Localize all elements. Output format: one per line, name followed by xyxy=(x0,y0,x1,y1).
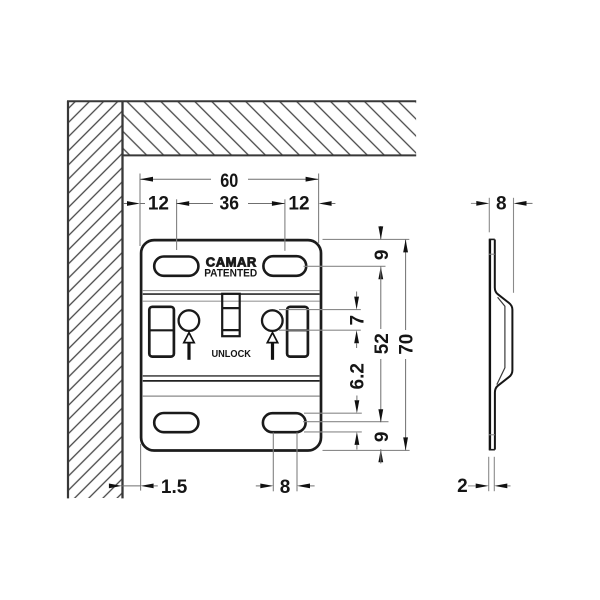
svg-text:60: 60 xyxy=(220,171,238,192)
svg-text:8: 8 xyxy=(496,193,507,214)
svg-text:12: 12 xyxy=(148,193,169,214)
svg-text:6.2: 6.2 xyxy=(347,363,368,389)
svg-text:2: 2 xyxy=(457,476,468,497)
svg-text:UNLOCK: UNLOCK xyxy=(211,348,251,360)
svg-text:12: 12 xyxy=(288,193,309,214)
svg-text:8: 8 xyxy=(280,477,291,498)
svg-text:PATENTED: PATENTED xyxy=(204,268,257,280)
svg-text:7: 7 xyxy=(348,315,369,326)
svg-text:1.5: 1.5 xyxy=(161,477,188,498)
svg-text:36: 36 xyxy=(220,193,240,214)
svg-text:70: 70 xyxy=(397,334,418,355)
svg-text:52: 52 xyxy=(372,333,393,354)
svg-text:9: 9 xyxy=(372,432,393,443)
svg-text:9: 9 xyxy=(372,250,393,261)
